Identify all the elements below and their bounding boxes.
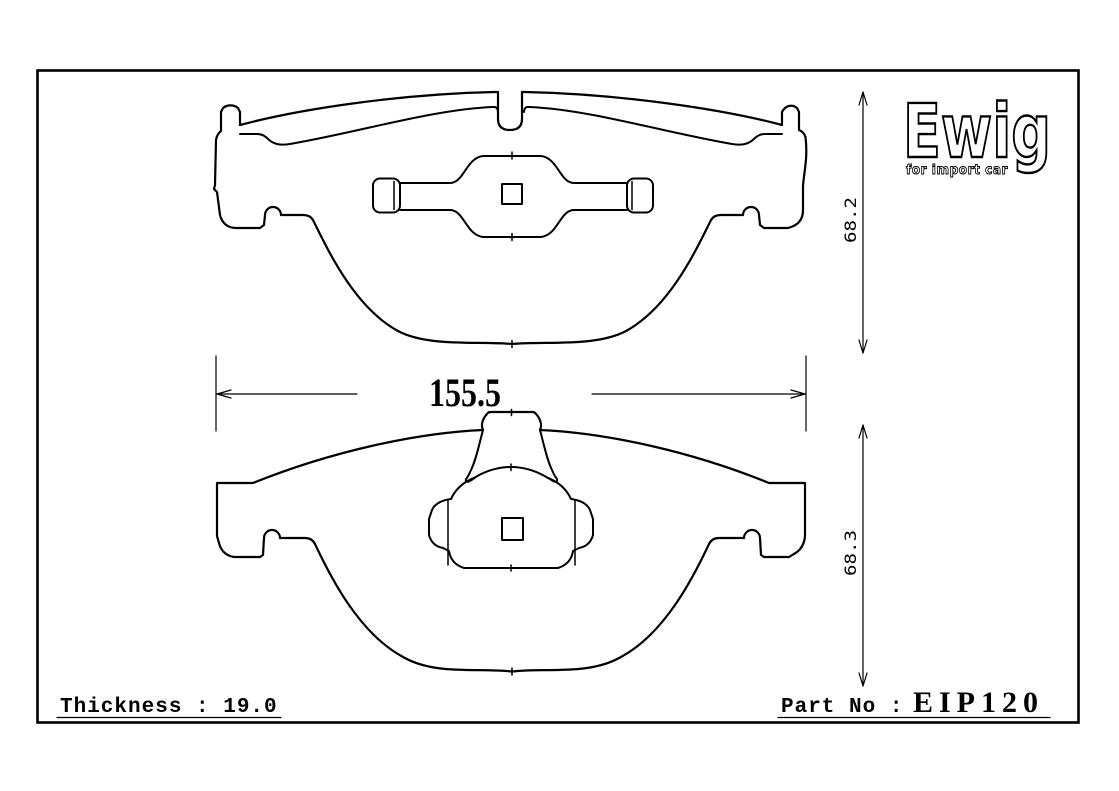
dimension-lower-height: 68.3 (841, 425, 867, 686)
pad-top-shim-right-clip (627, 179, 653, 213)
pad-top-outline (214, 92, 806, 344)
drawing-sheet: 155.5 68.2 68.3 Ewig for import car Thic… (0, 0, 1119, 791)
title-block: Thickness : 19.0 Part No : EIP120 (57, 686, 1050, 719)
pad-bottom-view (217, 410, 805, 676)
pad-top-shim-upper-edge (400, 156, 627, 183)
pad-bottom-outline (217, 412, 805, 672)
width-dimension-label: 155.5 (429, 370, 501, 415)
lower-height-dimension-label: 68.3 (841, 530, 860, 576)
thickness-label: Thickness : 19.0 (60, 696, 278, 719)
technical-drawing-canvas: 155.5 68.2 68.3 Ewig for import car Thic… (0, 0, 1119, 791)
pad-top-band-inner-left (240, 107, 498, 145)
pad-bottom-square-hole (502, 518, 523, 540)
pad-top-square-hole (502, 184, 522, 204)
pad-top-view (214, 92, 806, 348)
pad-top-shim-lower-edge (400, 210, 627, 237)
dimension-width: 155.5 (216, 356, 806, 431)
logo: Ewig for import car (903, 89, 1051, 178)
brand-tagline-text: for import car (906, 162, 1008, 178)
pad-top-shim-left-clip (373, 179, 400, 213)
part-no-label: Part No : (781, 696, 903, 719)
pad-top-band-inner-right (524, 107, 782, 145)
upper-height-dimension-label: 68.2 (841, 197, 860, 243)
part-no-value: EIP120 (913, 686, 1044, 719)
dimension-upper-height: 68.2 (841, 92, 867, 353)
